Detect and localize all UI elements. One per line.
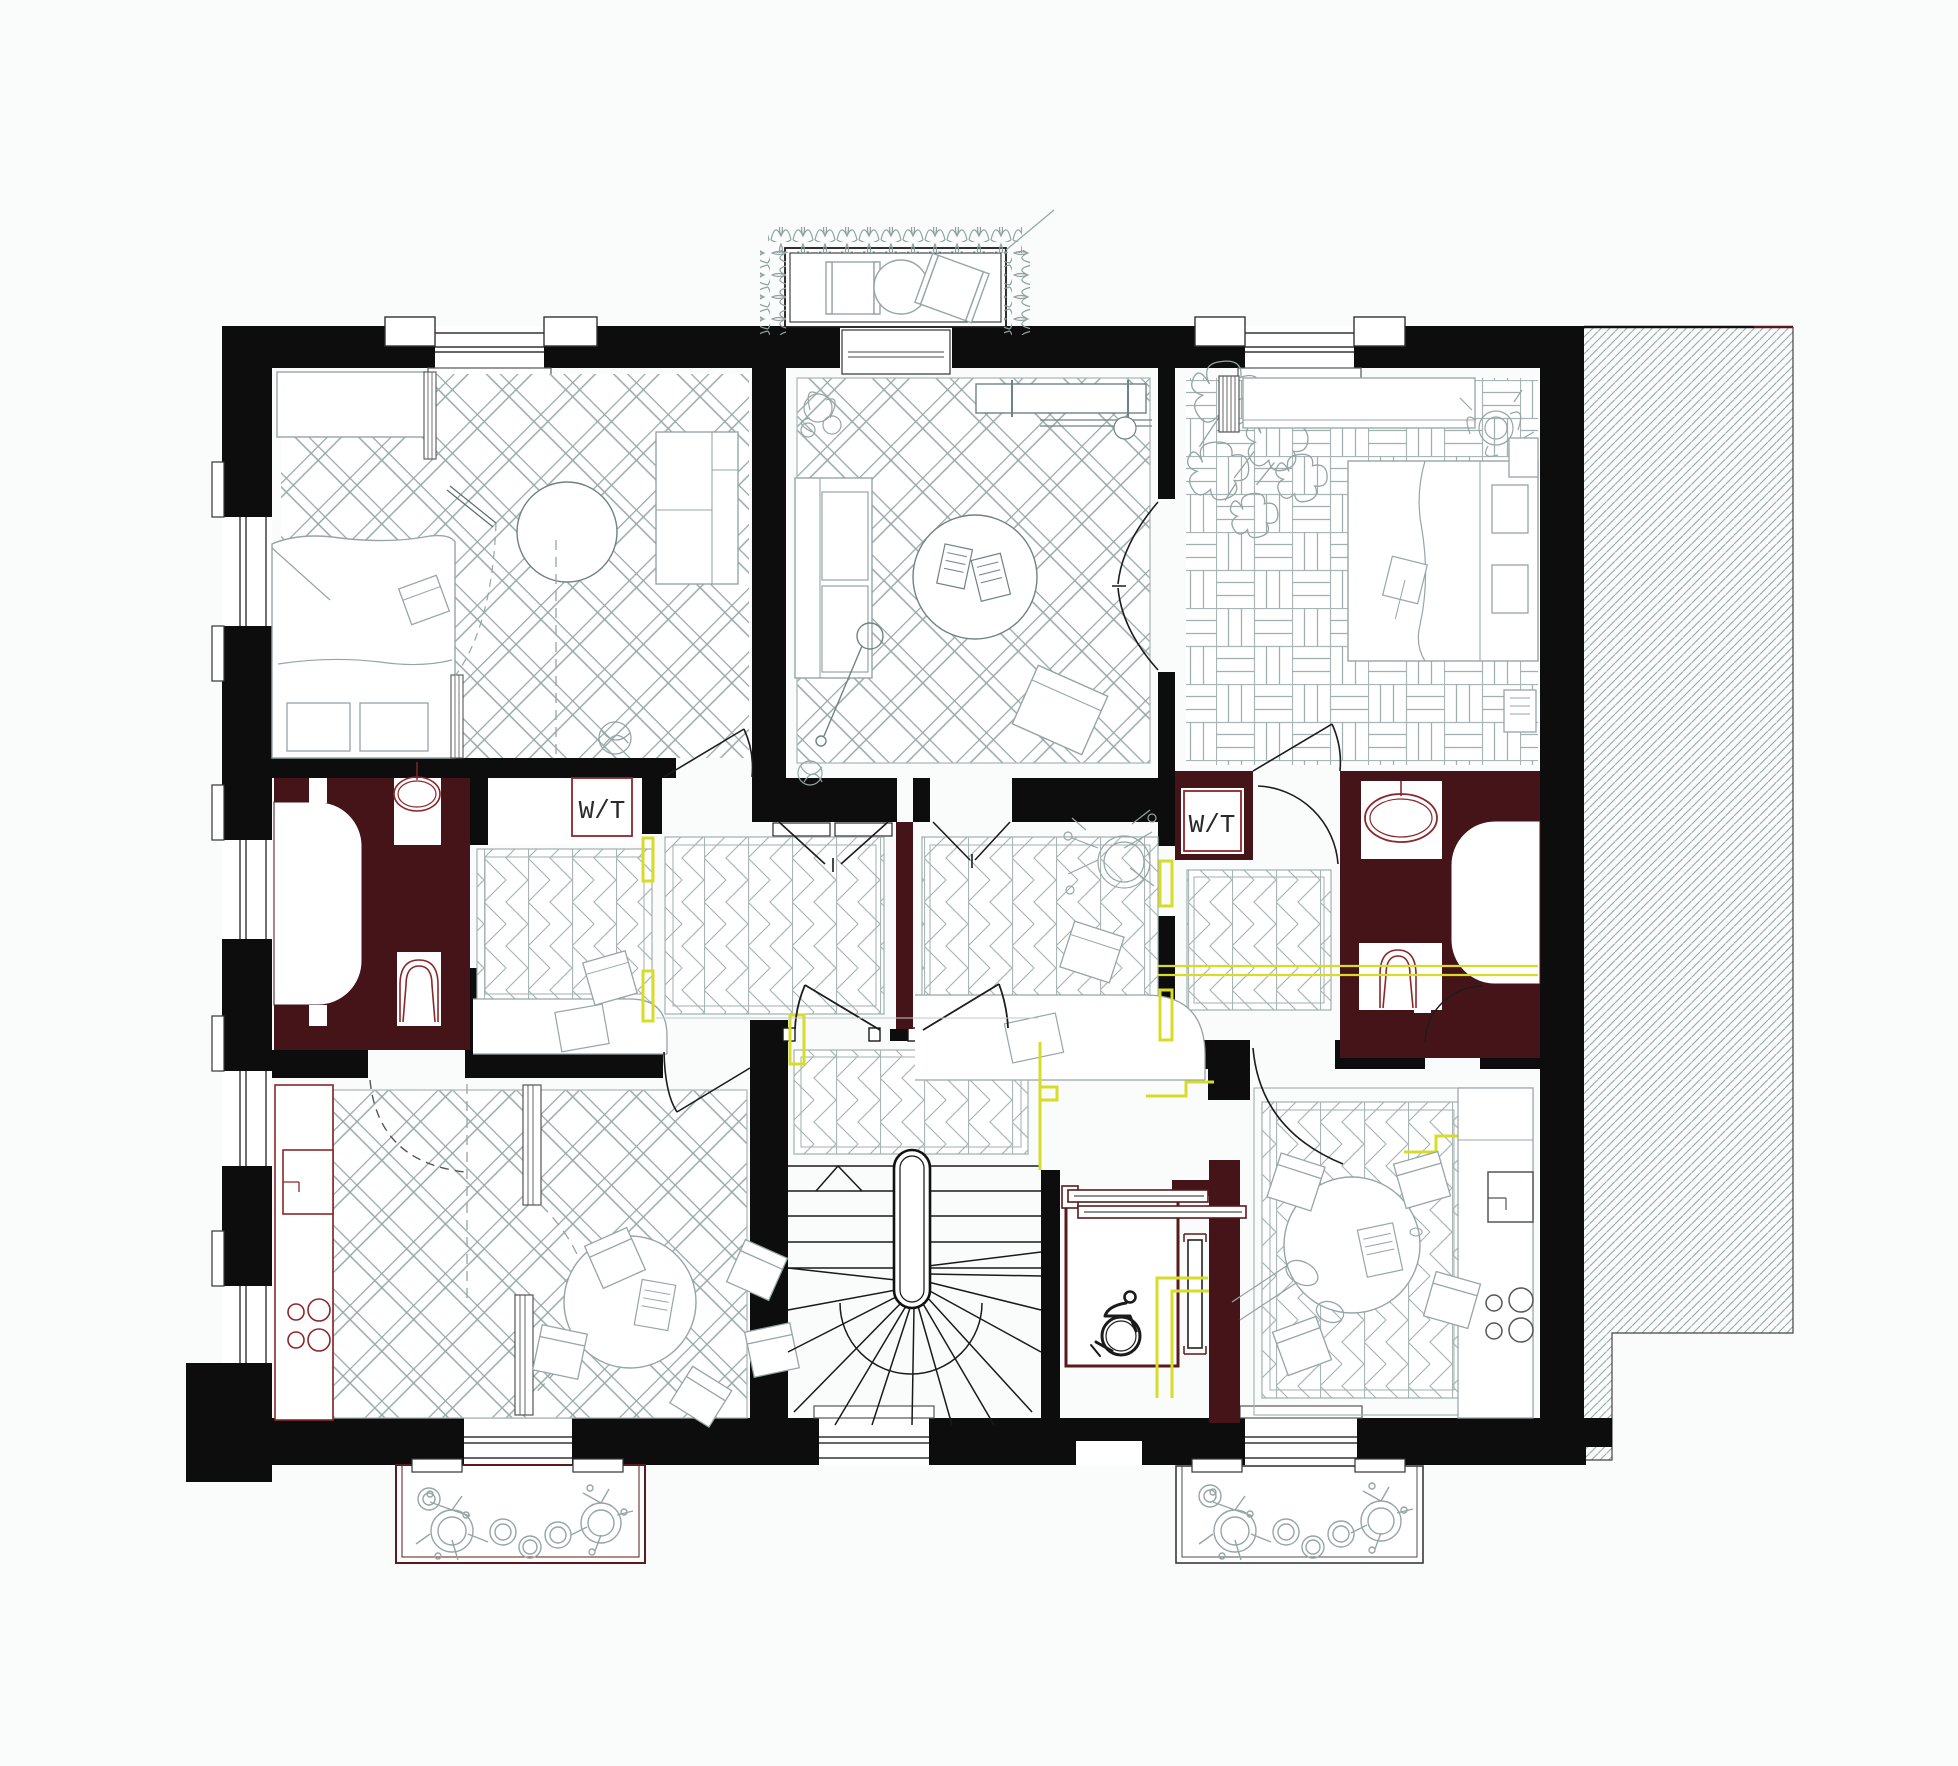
svg-text:W/T: W/T <box>579 796 626 826</box>
svg-text:W/T: W/T <box>1189 810 1236 840</box>
